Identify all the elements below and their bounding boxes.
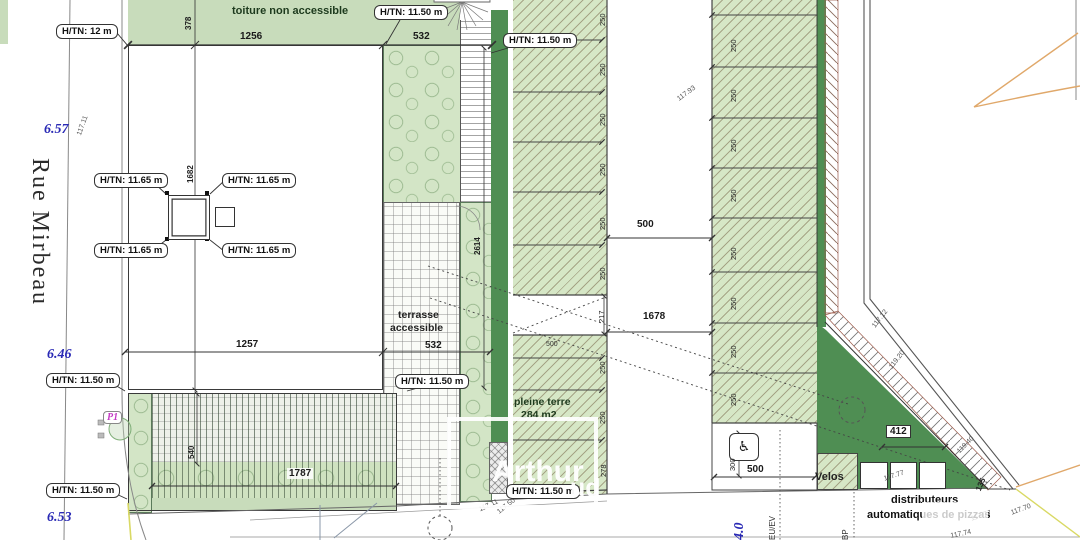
level-646: 6.46 bbox=[47, 347, 72, 363]
utility-lines bbox=[320, 503, 377, 540]
dim-250: 250 bbox=[598, 113, 607, 126]
dim-1257: 1257 bbox=[236, 339, 258, 350]
dim-250: 250 bbox=[598, 267, 607, 280]
dim-1682: 1682 bbox=[186, 165, 195, 183]
dim-500-row: 500 bbox=[546, 341, 558, 348]
htn-label-5: H/TN: 11.65 m bbox=[94, 243, 168, 258]
utility-label-bp: BP bbox=[841, 529, 850, 540]
dim-540: 540 bbox=[187, 446, 196, 459]
htn-label-2: H/TN: 11.50 m bbox=[503, 33, 577, 48]
htn-label-7: H/TN: 11.50 m bbox=[46, 373, 120, 388]
dim-250: 250 bbox=[729, 189, 738, 202]
contour-line-yellow bbox=[1016, 489, 1080, 537]
terrace-label-2: accessible bbox=[390, 322, 443, 334]
roof-hatch-box bbox=[215, 207, 235, 227]
htn-label-1: H/TN: 11.50 m bbox=[374, 5, 448, 20]
level-653: 6.53 bbox=[47, 510, 72, 526]
level-657: 6.57 bbox=[44, 122, 69, 138]
htn-label-3: H/TN: 11.65 m bbox=[94, 173, 168, 188]
utility-label-euev: EU/EV bbox=[768, 516, 777, 540]
manhole-circle-1 bbox=[428, 516, 452, 540]
roof-shaft bbox=[168, 195, 210, 240]
dim-1787: 1787 bbox=[287, 468, 313, 479]
dim-532-top: 532 bbox=[413, 31, 430, 42]
velos-label: Velos bbox=[815, 471, 844, 483]
dim-500-drive: 500 bbox=[637, 219, 654, 230]
door-swing-arc bbox=[456, 206, 480, 230]
roof-label: toiture non accessible bbox=[232, 5, 348, 17]
watermark-text-2: ud bbox=[570, 474, 601, 503]
vending-box-3 bbox=[919, 462, 946, 489]
htn-label-4: H/TN: 11.65 m bbox=[222, 173, 296, 188]
wheelchair-glyph: ♿ bbox=[738, 439, 751, 455]
htn-label-6: H/TN: 11.65 m bbox=[222, 243, 296, 258]
dim-250: 250 bbox=[729, 297, 738, 310]
contour-lines-orange bbox=[974, 33, 1080, 487]
dim-250: 250 bbox=[598, 163, 607, 176]
pleine-terre-label-1: pleine terre bbox=[514, 396, 571, 408]
dim-378: 378 bbox=[184, 17, 193, 30]
site-plan: ♿ H/TN: 12 m H/TN: 11.50 m H/TN: 11.50 m… bbox=[0, 0, 1080, 540]
wheelchair-icon: ♿ bbox=[729, 433, 759, 461]
dim-250: 250 bbox=[598, 63, 607, 76]
gas-line-west bbox=[128, 503, 131, 540]
terrace-label-1: terrasse bbox=[398, 309, 439, 321]
dim-250: 250 bbox=[598, 13, 607, 26]
property-line-west bbox=[64, 0, 70, 540]
dim-532-bottom: 532 bbox=[425, 340, 442, 351]
dim-300: 300 bbox=[728, 458, 737, 471]
htn-label-8: H/TN: 11.50 m bbox=[395, 374, 469, 389]
dim-500-handicap: 500 bbox=[747, 464, 764, 475]
dim-1256: 1256 bbox=[240, 31, 262, 42]
dim-1678: 1678 bbox=[643, 311, 665, 322]
dim-250: 250 bbox=[729, 39, 738, 52]
p1-label: P1 bbox=[103, 411, 122, 424]
handicap-bay-outline bbox=[712, 423, 817, 490]
watermark-patch bbox=[922, 502, 988, 522]
htn-label-0: H/TN: 12 m bbox=[56, 24, 118, 39]
street-name: Rue Mirbeau bbox=[26, 158, 53, 328]
level-40: 4.0 bbox=[732, 523, 748, 540]
dim-250: 250 bbox=[729, 89, 738, 102]
dim-250: 250 bbox=[729, 247, 738, 260]
dim-250: 250 bbox=[729, 345, 738, 358]
street-edge-west bbox=[122, 0, 146, 540]
dim-250: 250 bbox=[729, 139, 738, 152]
dim-250: 250 bbox=[598, 411, 607, 424]
dim-412: 412 bbox=[886, 425, 911, 438]
dim-250: 250 bbox=[598, 361, 607, 374]
parking-rows-right bbox=[712, 15, 817, 423]
border-strip-vertical bbox=[825, 0, 838, 313]
dim-250: 250 bbox=[729, 393, 738, 406]
dim-2614: 2614 bbox=[473, 237, 482, 255]
dim-217: 217 bbox=[597, 310, 606, 323]
dim-250: 250 bbox=[598, 217, 607, 230]
htn-label-9: H/TN: 11.50 m bbox=[46, 483, 120, 498]
